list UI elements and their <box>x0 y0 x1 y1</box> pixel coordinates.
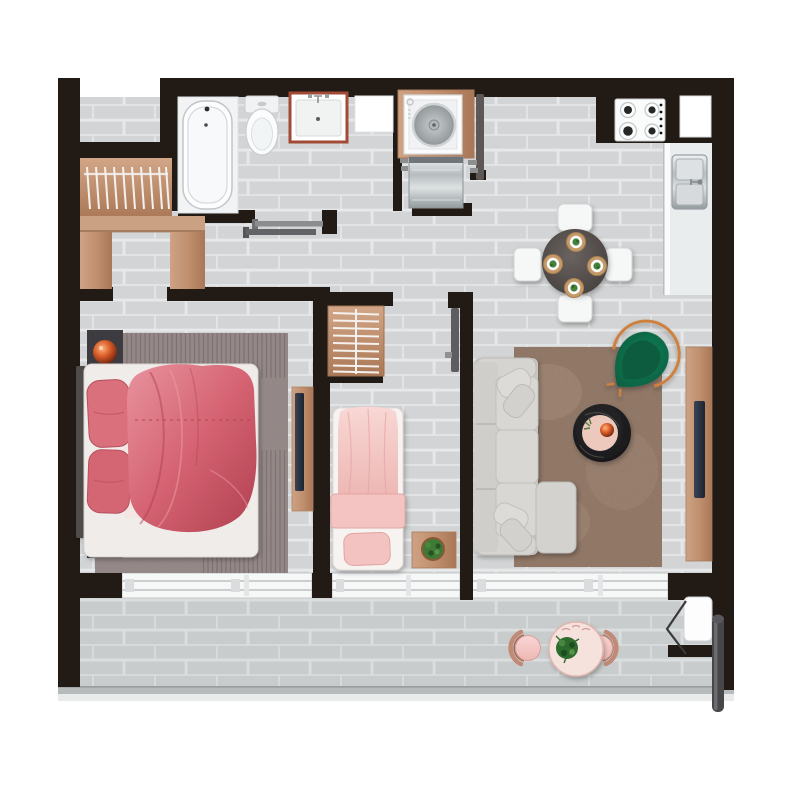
wardrobe-bench-left <box>80 232 112 289</box>
balcony-railing <box>58 686 734 701</box>
bedroom-tv-unit <box>292 387 313 511</box>
window-master-bedroom <box>122 573 312 598</box>
wardrobe-bench-right <box>170 232 205 289</box>
downpipe <box>712 615 724 713</box>
washing-machine <box>404 95 462 154</box>
single-bed <box>331 407 405 570</box>
potted-plant <box>423 539 443 559</box>
coffee-table <box>573 404 631 462</box>
bed-pillow <box>343 532 390 566</box>
vanity-sink <box>290 93 347 142</box>
hall-door-handle <box>400 158 408 163</box>
bathtub <box>178 97 238 213</box>
bed-duvet <box>127 364 256 532</box>
wardrobe-shelf <box>80 216 205 232</box>
bedroom-tv <box>295 393 304 491</box>
copper-bowl <box>600 423 614 437</box>
plant-side-table <box>412 532 456 568</box>
kitchen-counter <box>663 143 712 295</box>
toilet <box>245 96 279 155</box>
gas-hob <box>615 99 665 141</box>
window-living-room <box>472 573 668 598</box>
balcony-door-recess <box>684 597 712 641</box>
bistro-table <box>549 622 603 676</box>
kitchen-window <box>680 96 711 137</box>
closet-hanger-unit <box>328 306 384 376</box>
folded-blanket <box>331 494 405 528</box>
floor-plan-image <box>0 0 800 800</box>
living-tv <box>694 401 705 498</box>
kitchen-sink <box>672 155 707 209</box>
window-second-bedroom <box>332 573 460 598</box>
bathroom-niche <box>355 96 393 132</box>
double-bed <box>76 364 258 557</box>
floor-plan-page <box>0 0 800 800</box>
sofa-chaise <box>536 482 576 553</box>
copper-lamp-top <box>93 340 117 364</box>
living-tv-unit <box>686 347 712 561</box>
master-bedroom <box>76 330 313 573</box>
hall-door-handle-2 <box>401 166 408 171</box>
steel-appliance <box>409 157 463 208</box>
